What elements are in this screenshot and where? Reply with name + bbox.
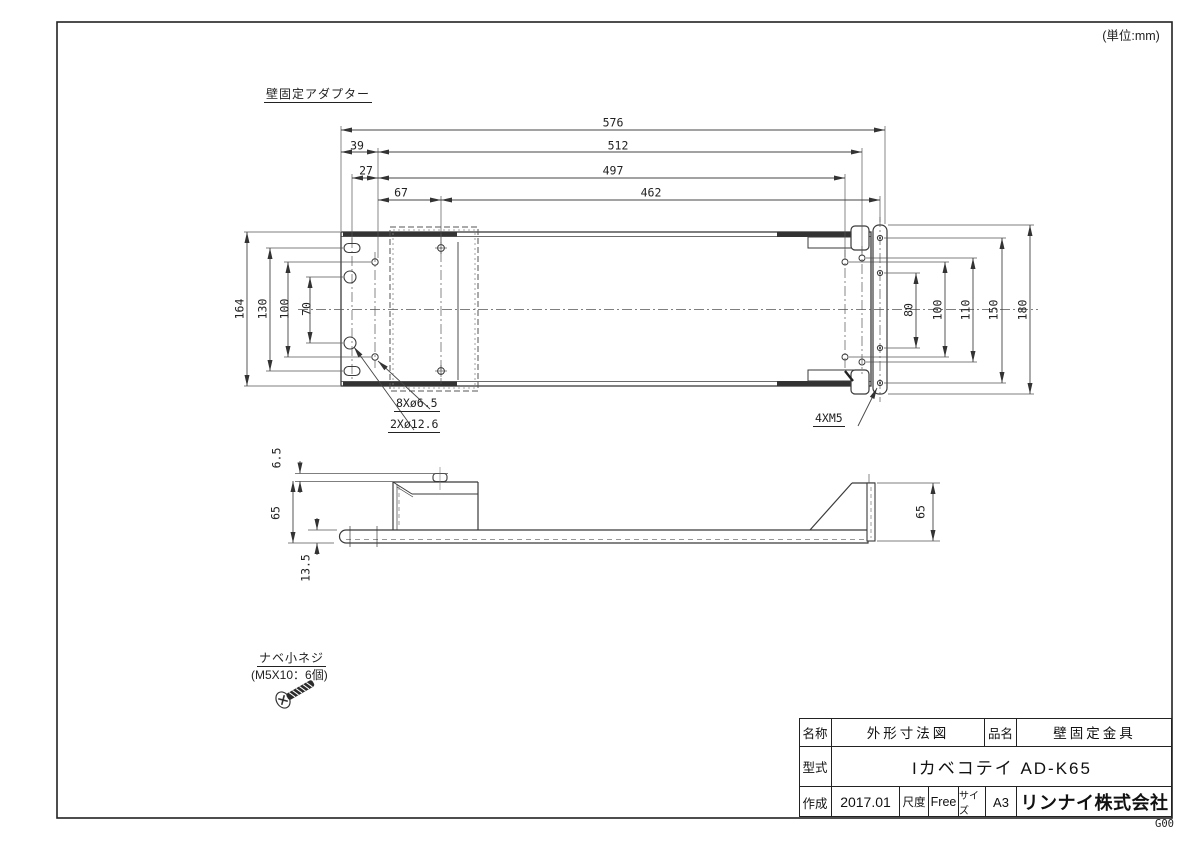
title-scale-label: 尺度 [900, 787, 929, 817]
title-created-label: 作成 [799, 787, 832, 817]
dim-150: 150 [988, 300, 1001, 321]
title-model-label: 型式 [799, 747, 832, 787]
dim-65-right: 65 [915, 505, 928, 519]
callout-2x12-6: 2Xø12.6 [388, 418, 440, 433]
dim-576: 576 [603, 117, 624, 130]
dim-164: 164 [234, 299, 247, 320]
small-dim-arrows [300, 461, 317, 555]
title-item-label: 品名 [985, 718, 1017, 747]
dim-13-5: 13.5 [300, 554, 313, 582]
title-model-value: Iカベコテイ AD-K65 [832, 747, 1172, 787]
unit-note: (単位:mm) [1102, 30, 1160, 44]
dim-70: 70 [301, 302, 314, 316]
dim-80: 80 [903, 303, 916, 317]
dim-512: 512 [608, 140, 629, 153]
dimension-lines [247, 130, 1030, 543]
dim-462: 462 [641, 187, 662, 200]
screw-note-title: ナベ小ネジ [257, 652, 326, 667]
dim-27: 27 [359, 165, 373, 178]
title-item-value: 壁固定金具 [1017, 718, 1172, 747]
dim-65-left: 65 [270, 506, 283, 520]
sheet-code: G00 [1155, 819, 1174, 831]
title-name-value: 外形寸法図 [832, 718, 985, 747]
dim-67: 67 [394, 187, 408, 200]
dim-100-right: 100 [932, 300, 945, 321]
dim-39: 39 [350, 140, 364, 153]
callout-4xm5: 4XM5 [813, 412, 845, 427]
dim-130: 130 [257, 299, 270, 320]
dim-180: 180 [1017, 300, 1030, 321]
dim-497: 497 [603, 165, 624, 178]
company-logo: リンナイ株式会社 [1017, 787, 1172, 817]
title-created-value: 2017.01 [832, 787, 900, 817]
callout-8x6-5: 8Xø6.5 [394, 397, 440, 412]
screw-note-spec: (M5X10：6個) [251, 669, 328, 682]
title-size-value: A3 [986, 787, 1017, 817]
drawing-sheet: (単位:mm) 壁固定アダプター 576 39 512 27 497 67 46… [0, 0, 1200, 848]
side-view [288, 467, 940, 547]
dim-6-5: 6.5 [271, 448, 284, 469]
plan-view [298, 217, 1038, 402]
title-scale-value: Free [929, 787, 959, 817]
view-title: 壁固定アダプター [264, 88, 372, 103]
dim-100-left: 100 [279, 299, 292, 320]
dim-110: 110 [960, 300, 973, 321]
title-name-label: 名称 [799, 718, 832, 747]
title-size-label: サイズ [959, 787, 986, 817]
